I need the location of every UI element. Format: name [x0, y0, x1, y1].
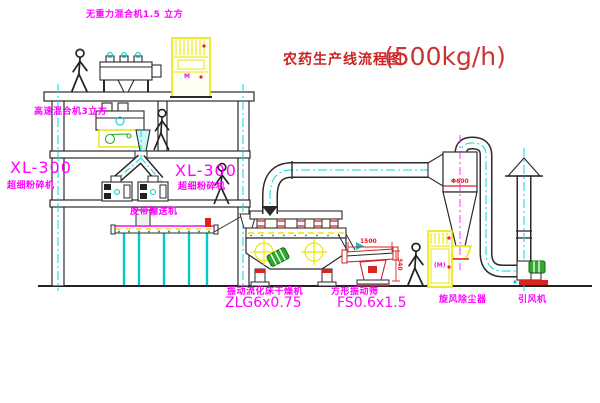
label-high-speed-mixer: 高速混合机3立方 [34, 108, 107, 117]
label-fan: 引风机 [518, 296, 547, 305]
cyclone-separator [443, 135, 519, 271]
label-left-mill-name: 超细粉碎机 [7, 182, 55, 191]
motor-marker-collector: (M) [434, 263, 445, 269]
label-belt-conveyor: 皮带输送机 [130, 208, 178, 217]
dim-screen-height: 340 [396, 258, 402, 271]
label-dryer-model: ZLG6x0.75 [225, 296, 302, 310]
label-gravity-mixer: 无重力混合机1.5 立方 [86, 11, 183, 20]
pulverizer-right [138, 176, 168, 201]
dim-screen-length: 1500 [360, 239, 377, 245]
motor-marker-elevator: M [184, 74, 190, 80]
gravity-free-mixer [100, 53, 161, 92]
label-center-mill-model: XL-300 [175, 163, 237, 179]
dim-cyclone-diameter: Φ600 [451, 179, 469, 185]
process-flow-drawing: 无重力混合机1.5 立方 农药生产线流程图 (500kg/h) 高速混合机3立方… [0, 0, 600, 403]
label-screen-model: FS0.6x1.5 [337, 296, 407, 310]
person-figure-1 [72, 49, 87, 91]
label-cyclone: 旋风除尘器 [439, 296, 487, 305]
drawing-title-capacity: (500kg/h) [384, 44, 506, 69]
exhaust-duct [262, 154, 443, 216]
fluid-bed-dryer [240, 211, 346, 286]
bucket-elevator [170, 38, 212, 97]
label-center-mill-name: 超细粉碎机 [178, 183, 226, 192]
induced-draft-fan [513, 261, 548, 285]
label-left-mill-model: XL-300 [10, 160, 72, 176]
dust-collector-bin [428, 231, 452, 287]
belt-conveyor [111, 216, 242, 285]
pulverizer-left [102, 176, 132, 201]
person-figure-4 [408, 243, 423, 285]
